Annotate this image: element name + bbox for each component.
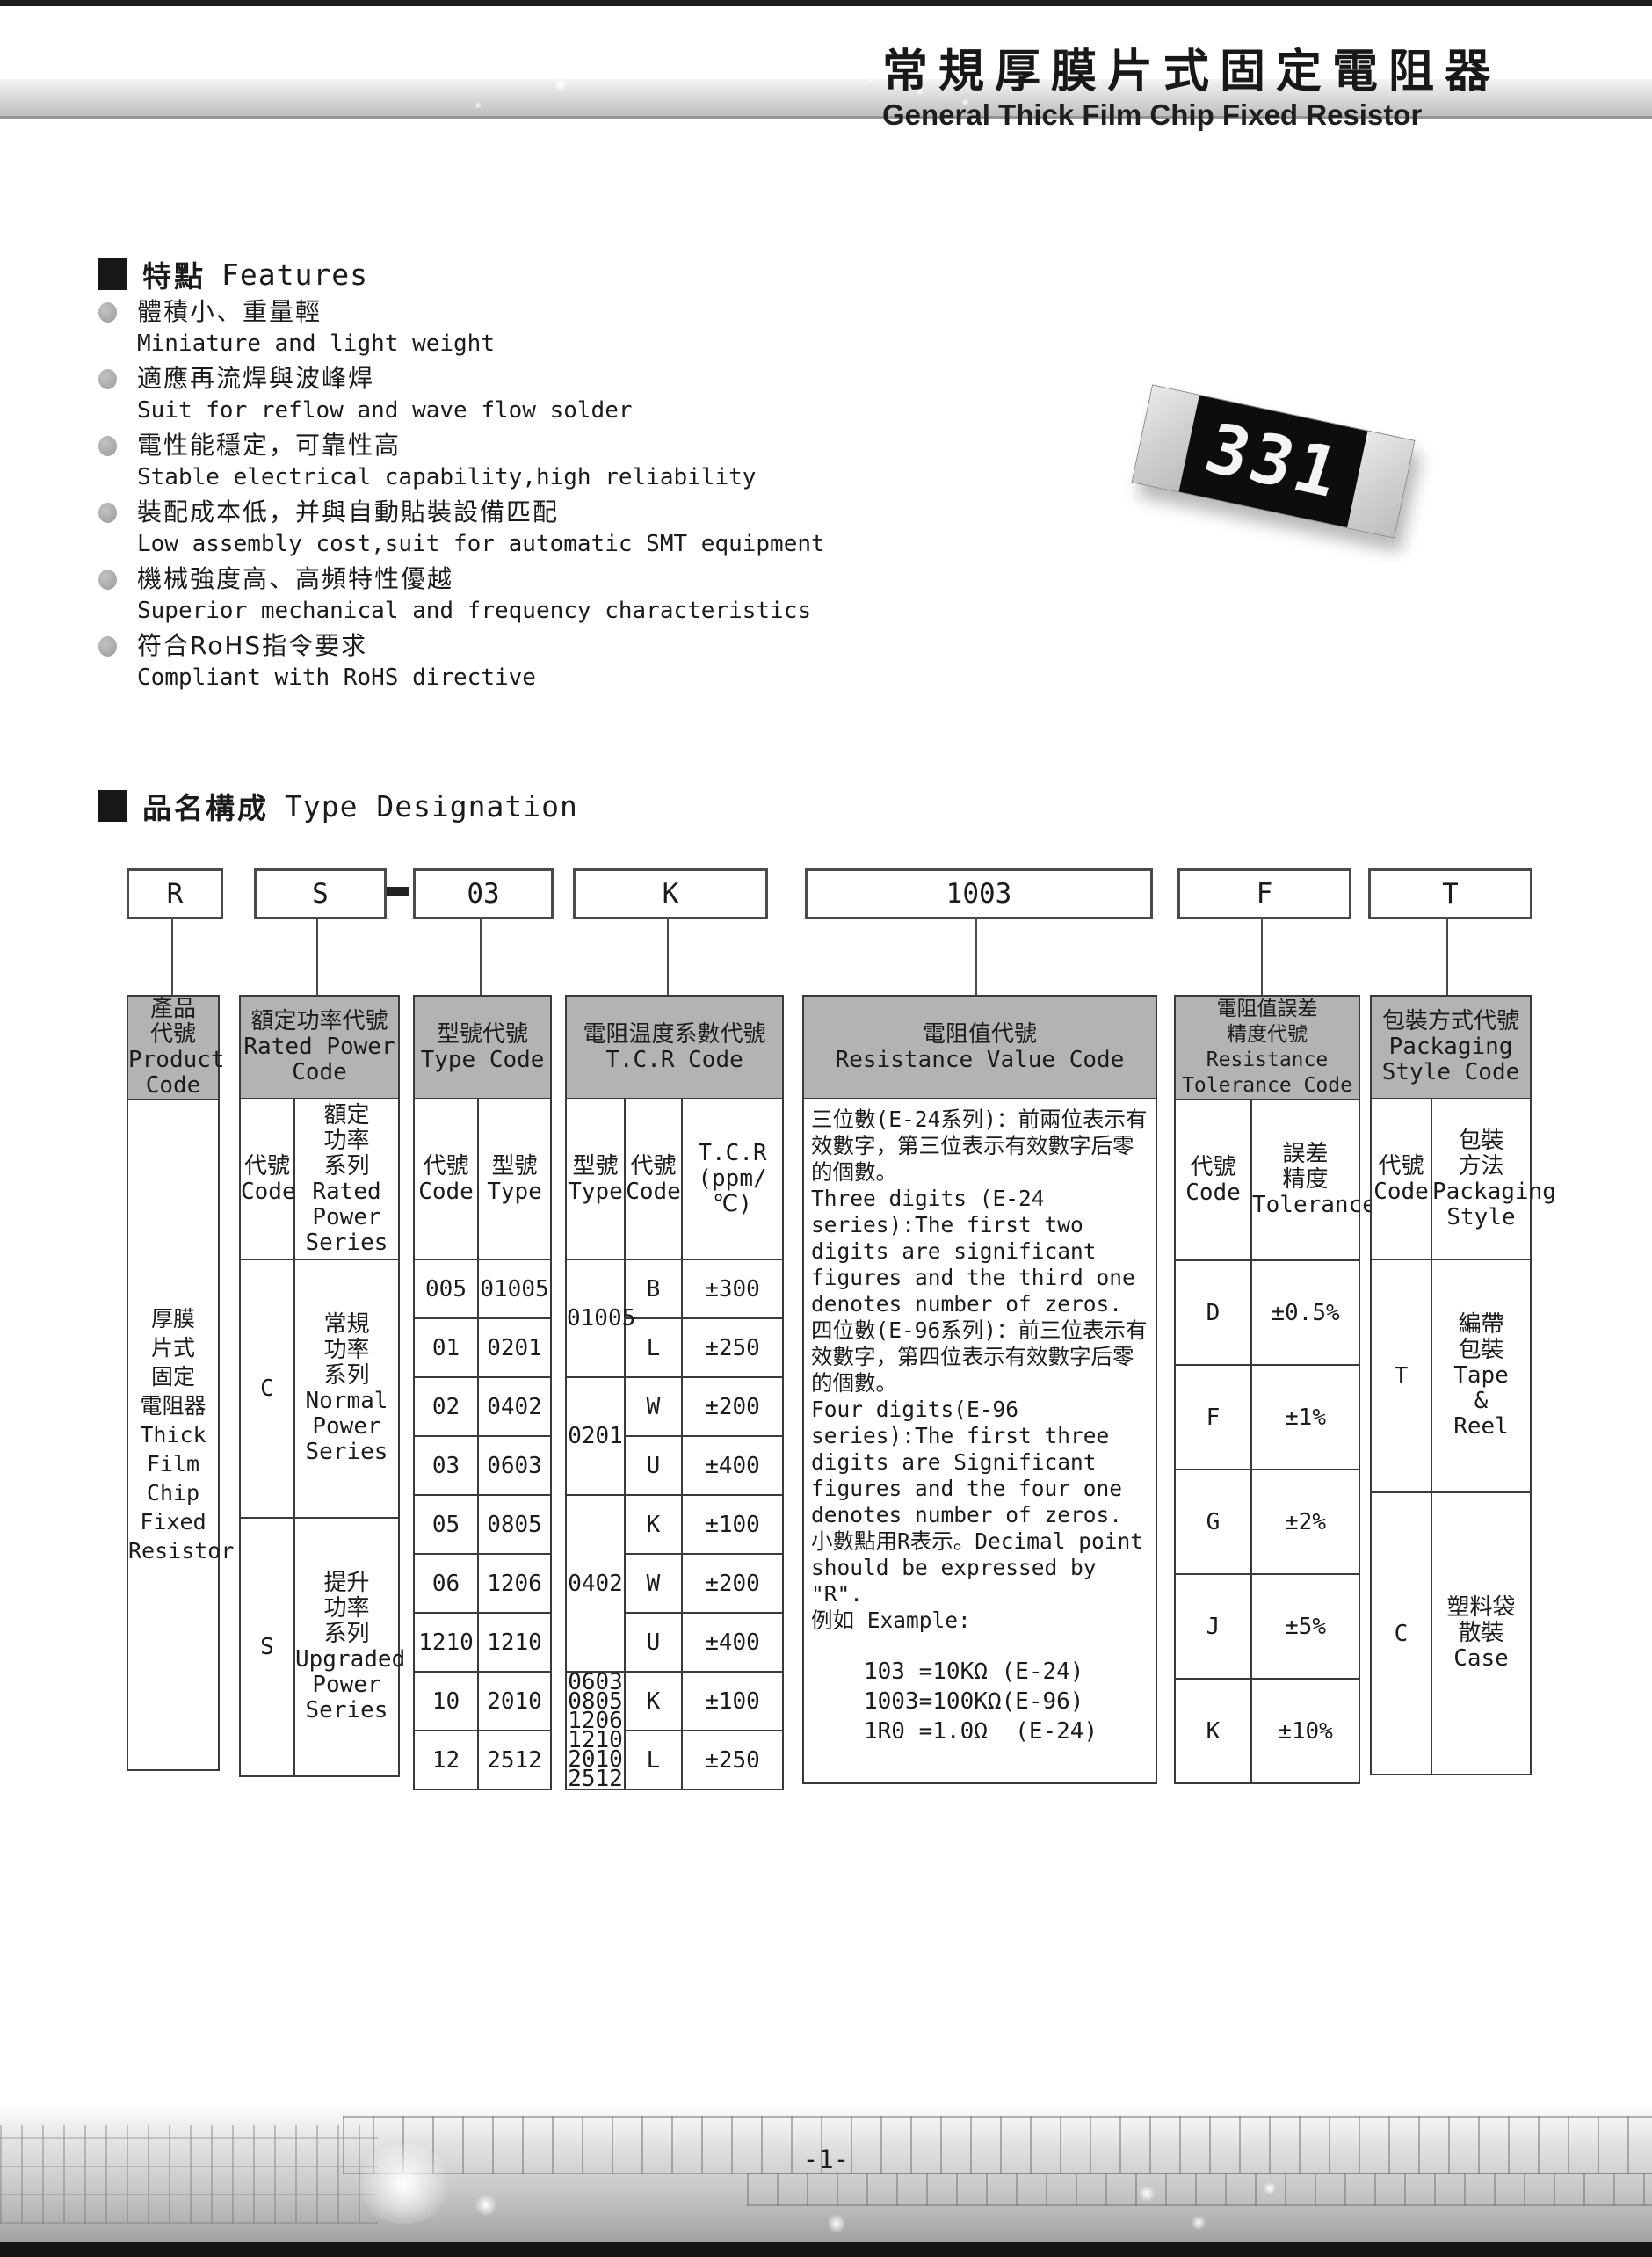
features-heading-en: Features xyxy=(221,258,368,292)
subheader-style: 包裝 方法 Packaging Style xyxy=(1431,1099,1531,1259)
connector-line xyxy=(975,919,977,995)
feature-en: Compliant with RoHS directive xyxy=(137,662,960,693)
tcr-group-type: 0603 0805 1206 1210 2010 2512 xyxy=(566,1672,625,1789)
tolerance-column: 電阻值誤差 精度代號 Resistance Tolerance Code 代號 … xyxy=(1174,995,1360,1784)
type-row-code: 10 xyxy=(414,1672,478,1731)
column-header: 包裝方式代號 Packaging Style Code xyxy=(1371,996,1531,1099)
type-designation-heading: 品名構成 Type Designation xyxy=(98,785,578,827)
rv-paragraph: 小數點用R表示。Decimal point should be expresse… xyxy=(811,1528,1148,1607)
connector-line xyxy=(171,919,173,995)
bullet-icon xyxy=(98,369,117,389)
type-row-code: 05 xyxy=(414,1495,478,1554)
connector-line xyxy=(1261,919,1263,995)
page-title: 常規厚膜片式固定電阻器 General Thick Film Chip Fixe… xyxy=(882,47,1501,132)
page-number: -1- xyxy=(803,2145,849,2174)
type-code-column: 型號代號 Type Code 代號 Code 型號 Type 00501005 … xyxy=(413,995,552,1790)
features-list: 體積小、重量輕 Miniature and light weight 適應再流焊… xyxy=(98,295,960,696)
type-row-type: 0805 xyxy=(478,1495,551,1554)
connector-line xyxy=(667,919,669,995)
tolerance-value: ±0.5% xyxy=(1251,1260,1359,1365)
feature-item: 機械強度高、高頻特性優越 Superior mechanical and fre… xyxy=(98,562,960,627)
designation-heading-cn: 品名構成 xyxy=(142,785,269,827)
tolerance-code: J xyxy=(1175,1574,1251,1679)
sparkle-dot xyxy=(475,102,482,109)
bullet-icon xyxy=(98,436,117,456)
type-row-code: 01 xyxy=(414,1318,478,1377)
footer-rect-row xyxy=(747,2173,1652,2206)
tcr-value: ±400 xyxy=(682,1613,783,1672)
feature-item: 符合RoHS指令要求 Compliant with RoHS directive xyxy=(98,629,960,693)
feature-item: 裝配成本低，并與自動貼裝設備匹配 Low assembly cost,suit … xyxy=(98,496,960,560)
product-description: 厚膜 片式 固定 電阻器 Thick Film Chip Fixed Resis… xyxy=(127,1099,219,1770)
tcr-code: K xyxy=(625,1495,682,1554)
tcr-value: ±100 xyxy=(682,1495,783,1554)
sparkle-dot xyxy=(475,2194,497,2217)
type-row-type: 0402 xyxy=(478,1377,551,1436)
rv-paragraph: 四位數(E-96系列)：前三位表示有效數字，第四位表示有效數字后零的個數。 xyxy=(811,1317,1148,1397)
sparkle-dot xyxy=(828,2213,845,2234)
type-row-code: 005 xyxy=(414,1259,478,1318)
feature-en: Miniature and light weight xyxy=(137,328,960,359)
tcr-value: ±200 xyxy=(682,1554,783,1613)
column-header: 電阻温度系數代號 T.C.R Code xyxy=(566,996,783,1099)
chip-marking: 331 xyxy=(1196,410,1351,513)
subheader-series: 額定 功率 系列 Rated Power Series xyxy=(294,1099,399,1259)
tolerance-code: G xyxy=(1175,1470,1251,1574)
tcr-code: U xyxy=(625,1613,682,1672)
feature-en: Superior mechanical and frequency charac… xyxy=(137,595,960,627)
tcr-value: ±100 xyxy=(682,1672,783,1731)
page-title-chinese: 常規厚膜片式固定電阻器 xyxy=(882,47,1501,97)
feature-en: Stable electrical capability,high reliab… xyxy=(137,461,960,493)
resistance-value-text: 三位數(E-24系列)：前兩位表示有效數字，第三位表示有效數字后零的個數。 Th… xyxy=(803,1099,1156,1783)
tolerance-code: K xyxy=(1175,1679,1251,1783)
type-row-code: 02 xyxy=(414,1377,478,1436)
column-header: 電阻值代號 Resistance Value Code xyxy=(803,996,1156,1099)
chip-resistor: 331 xyxy=(1131,384,1415,538)
tcr-group-type: 0201 xyxy=(566,1377,625,1495)
top-edge-bar xyxy=(0,0,1652,6)
subheader-code: 代號 Code xyxy=(1175,1099,1251,1260)
rv-paragraph: 三位數(E-24系列)：前兩位表示有效數字，第三位表示有效數字后零的個數。 xyxy=(811,1107,1148,1186)
rv-examples: 103 =10KΩ (E-24) 1003=100KΩ(E-96) 1R0 =1… xyxy=(811,1657,1148,1746)
subheader-code: 代號 Code xyxy=(240,1099,294,1259)
bullet-icon xyxy=(98,503,117,523)
type-row-type: 0603 xyxy=(478,1436,551,1495)
footer-rect-row xyxy=(343,2116,1652,2174)
type-row-type: 1210 xyxy=(478,1613,551,1672)
tcr-value: ±250 xyxy=(682,1731,783,1789)
tolerance-code: F xyxy=(1175,1365,1251,1470)
rv-paragraph: Three digits (E-24 series):The first two… xyxy=(811,1186,1148,1317)
product-code-column: 產品 代號 Product Code 厚膜 片式 固定 電阻器 Thick Fi… xyxy=(127,995,220,1771)
subheader-code: 代號 Code xyxy=(625,1099,682,1259)
sparkle-dot xyxy=(866,72,876,83)
tolerance-code: D xyxy=(1175,1260,1251,1365)
rv-example: 1003=100KΩ(E-96) xyxy=(864,1687,1148,1716)
tolerance-value: ±1% xyxy=(1251,1365,1359,1470)
connector-line xyxy=(1446,919,1448,995)
feature-cn: 適應再流焊與波峰焊 xyxy=(137,362,960,395)
subheader-tcr: T.C.R (ppm/℃) xyxy=(682,1099,783,1259)
tcr-code: W xyxy=(625,1554,682,1613)
subheader-tolerance: 誤差 精度 Tolerance xyxy=(1251,1099,1359,1260)
power-series: 提升 功率 系列 Upgraded Power Series xyxy=(294,1518,399,1776)
tcr-code: K xyxy=(625,1672,682,1731)
section-marker-square xyxy=(98,790,127,822)
subheader-type: 型號 Type xyxy=(566,1099,625,1259)
tcr-value: ±400 xyxy=(682,1436,783,1495)
datasheet-page: 常規厚膜片式固定電阻器 General Thick Film Chip Fixe… xyxy=(0,0,1652,2257)
subheader-type: 型號 Type xyxy=(478,1099,551,1259)
sparkle-dot xyxy=(554,77,568,91)
sparkle-dot xyxy=(1264,2181,1276,2195)
dash-separator xyxy=(387,887,409,896)
bullet-icon xyxy=(98,636,117,657)
feature-item: 電性能穩定，可靠性高 Stable electrical capability,… xyxy=(98,429,960,493)
tcr-value: ±250 xyxy=(682,1318,783,1377)
type-row-type: 01005 xyxy=(478,1259,551,1318)
bullet-icon xyxy=(98,570,117,590)
features-heading-cn: 特點 xyxy=(142,253,206,295)
page-title-english: General Thick Film Chip Fixed Resistor xyxy=(882,98,1501,132)
type-row-type: 0201 xyxy=(478,1318,551,1377)
tcr-value: ±300 xyxy=(682,1259,783,1318)
tcr-code: U xyxy=(625,1436,682,1495)
column-header: 產品 代號 Product Code xyxy=(127,996,219,1099)
resistance-value-column: 電阻值代號 Resistance Value Code 三位數(E-24系列)：… xyxy=(802,995,1157,1784)
packaging-code: C xyxy=(1371,1492,1431,1774)
tcr-code: L xyxy=(625,1731,682,1789)
designation-heading-en: Type Designation xyxy=(285,789,578,824)
type-row-code: 12 xyxy=(414,1731,478,1789)
power-code: C xyxy=(240,1259,294,1518)
subheader-code: 代號 Code xyxy=(414,1099,478,1259)
feature-item: 適應再流焊與波峰焊 Suit for reflow and wave flow … xyxy=(98,362,960,426)
packaging-column: 包裝方式代號 Packaging Style Code 代號 Code 包裝 方… xyxy=(1370,995,1532,1775)
packaging-code: T xyxy=(1371,1259,1431,1492)
connector-line xyxy=(316,919,318,995)
tcr-value: ±200 xyxy=(682,1377,783,1436)
code-box-tcr: K xyxy=(573,868,768,919)
code-box-tolerance: F xyxy=(1177,868,1351,919)
sparkle-dot xyxy=(1192,2215,1206,2231)
rv-paragraph: 例如 Example: xyxy=(811,1607,1148,1634)
features-heading: 特點 Features xyxy=(98,253,368,295)
type-row-type: 1206 xyxy=(478,1554,551,1613)
feature-cn: 電性能穩定，可靠性高 xyxy=(137,429,960,461)
type-row-type: 2512 xyxy=(478,1731,551,1789)
column-header: 型號代號 Type Code xyxy=(414,996,551,1099)
type-row-code: 06 xyxy=(414,1554,478,1613)
type-row-code: 1210 xyxy=(414,1613,478,1672)
feature-cn: 符合RoHS指令要求 xyxy=(137,629,960,662)
connector-line xyxy=(480,919,482,995)
code-box-product: R xyxy=(127,868,223,919)
type-row-type: 2010 xyxy=(478,1672,551,1731)
code-box-type: 03 xyxy=(413,868,554,919)
code-box-power: S xyxy=(254,868,387,919)
subheader-code: 代號 Code xyxy=(1371,1099,1431,1259)
rv-paragraph: Four digits(E-96 series):The first three… xyxy=(811,1397,1148,1528)
column-header: 額定功率代號 Rated Power Code xyxy=(240,996,399,1099)
type-row-code: 03 xyxy=(414,1436,478,1495)
column-header: 電阻值誤差 精度代號 Resistance Tolerance Code xyxy=(1175,996,1359,1099)
rated-power-column: 額定功率代號 Rated Power Code 代號 Code 額定 功率 系列… xyxy=(239,995,400,1777)
packaging-style: 編帶 包裝 Tape & Reel xyxy=(1431,1259,1531,1492)
footer-glow xyxy=(351,2145,457,2224)
tolerance-value: ±10% xyxy=(1251,1679,1359,1783)
section-marker-square xyxy=(98,258,127,290)
code-box-value: 1003 xyxy=(805,868,1153,919)
rv-example: 103 =10KΩ (E-24) xyxy=(864,1657,1148,1687)
power-series: 常規 功率 系列 Normal Power Series xyxy=(294,1259,399,1518)
tcr-group-type: 0402 xyxy=(566,1495,625,1672)
tolerance-value: ±5% xyxy=(1251,1574,1359,1679)
bottom-edge-bar xyxy=(0,2242,1652,2257)
feature-en: Low assembly cost,suit for automatic SMT… xyxy=(137,528,960,560)
tcr-code: W xyxy=(625,1377,682,1436)
feature-cn: 裝配成本低，并與自動貼裝設備匹配 xyxy=(137,496,960,528)
footer-skyline-pattern xyxy=(0,2125,378,2224)
packaging-style: 塑料袋 散裝 Case xyxy=(1431,1492,1531,1774)
tcr-column: 電阻温度系數代號 T.C.R Code 型號 Type 代號 Code T.C.… xyxy=(565,995,784,1790)
rv-example: 1R0 =1.0Ω (E-24) xyxy=(864,1716,1148,1746)
power-code: S xyxy=(240,1518,294,1776)
feature-cn: 機械強度高、高頻特性優越 xyxy=(137,562,960,595)
chip-body: 331 xyxy=(1178,396,1367,527)
feature-item: 體積小、重量輕 Miniature and light weight xyxy=(98,295,960,359)
feature-cn: 體積小、重量輕 xyxy=(137,295,960,328)
bullet-icon xyxy=(98,302,117,323)
tolerance-value: ±2% xyxy=(1251,1470,1359,1574)
code-box-packaging: T xyxy=(1368,868,1532,919)
chip-resistor-photo: 331 xyxy=(1131,384,1415,538)
tcr-group-type: 01005 xyxy=(566,1259,625,1377)
feature-en: Suit for reflow and wave flow solder xyxy=(137,395,960,426)
sparkle-dot xyxy=(1139,2185,1155,2203)
